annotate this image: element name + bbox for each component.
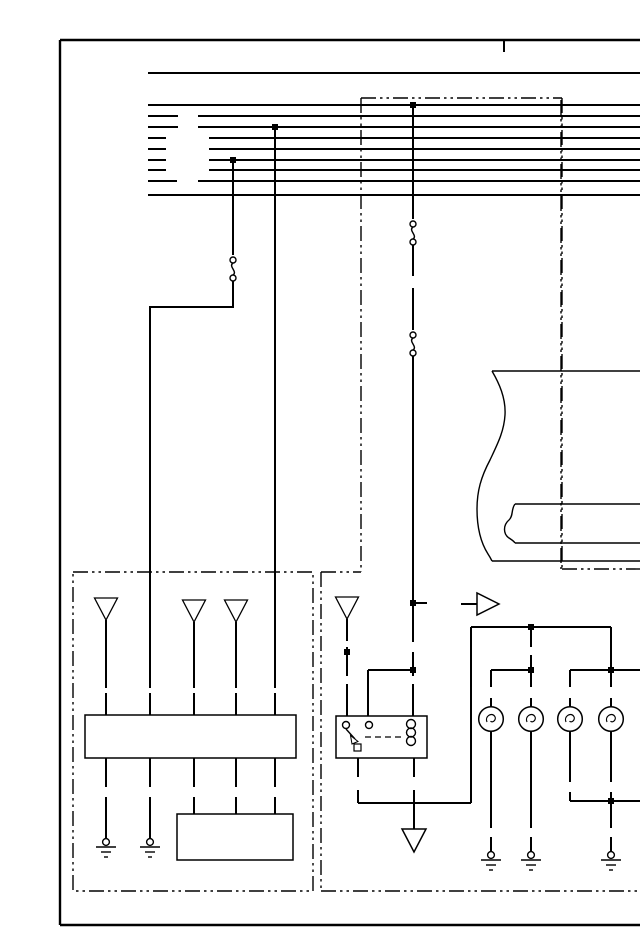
splice-dot <box>344 649 350 655</box>
terminal-triangle-icon <box>225 600 248 622</box>
terminal-triangle-icon <box>95 598 118 620</box>
chassis-ground-icon <box>402 829 426 852</box>
inline-connector-icon <box>410 221 416 245</box>
harness-boundaries <box>73 98 640 891</box>
bulb-icon <box>479 707 504 732</box>
terminal-triangle-icon <box>336 597 359 619</box>
torn-edge-inner <box>505 504 516 543</box>
torn-edge <box>477 371 505 561</box>
page-border <box>60 40 640 925</box>
junction-dot <box>230 157 236 163</box>
bulb-icon <box>558 707 583 732</box>
bulb-icon <box>519 707 544 732</box>
continuation-arrow <box>461 593 499 615</box>
terminal-triangle-icon <box>183 600 206 622</box>
junction-dot <box>528 667 534 673</box>
ground-icon <box>140 839 160 857</box>
junction-dot <box>410 102 416 108</box>
inline-connector-icon <box>230 257 236 281</box>
left-branch-wires <box>150 130 275 715</box>
ground-icon <box>96 839 116 857</box>
bulb-icon <box>599 707 624 732</box>
continuation-arrow-icon <box>477 593 499 615</box>
center-feed-wire <box>410 108 427 716</box>
junction-dot <box>528 624 534 630</box>
module-a-box <box>85 715 296 758</box>
module-a <box>85 598 296 860</box>
lamp-circuit <box>471 624 640 870</box>
partial-component-offpage <box>477 371 640 561</box>
relay-contact <box>354 744 361 751</box>
wiring-diagram-canvas <box>0 0 640 950</box>
inline-connector-icon <box>410 332 416 356</box>
diagram-page <box>0 0 640 950</box>
power-bus-lines <box>148 73 640 195</box>
junction-dot <box>410 667 416 673</box>
ground-icon <box>481 852 501 870</box>
ground-icon <box>601 852 621 870</box>
relay-circuit <box>336 597 472 852</box>
module-a2-box <box>177 814 293 860</box>
junction-dot <box>272 124 278 130</box>
ground-icon <box>521 852 541 870</box>
junction-dot <box>410 600 416 606</box>
